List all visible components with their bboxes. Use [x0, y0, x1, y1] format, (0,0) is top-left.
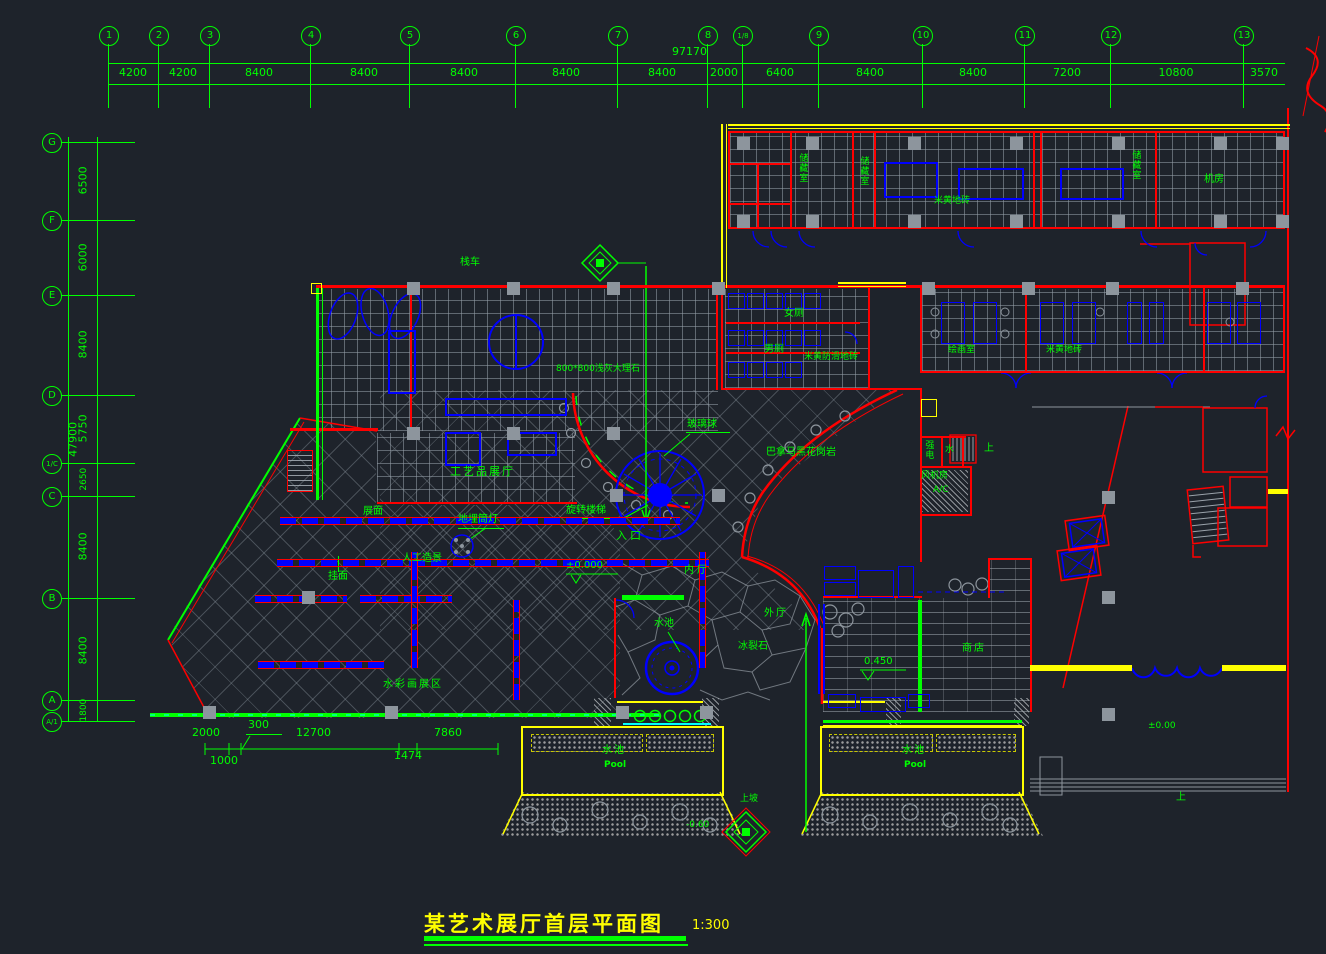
label-pool-left-en: Pool: [604, 760, 626, 770]
dim-label: 8400: [850, 66, 890, 79]
dim-label: 12700: [296, 727, 331, 740]
dim-label: 7860: [434, 727, 462, 740]
dim-label: 6500: [78, 155, 91, 205]
sofa: [858, 570, 894, 598]
yellow-line: [838, 286, 906, 287]
label-downlight: 地埋筒灯: [458, 514, 498, 526]
label-beige-tile-1: 米黄地砖: [934, 196, 970, 206]
label-pool-right-en: Pool: [904, 760, 926, 770]
label-craft-hall: 工艺品展厅: [450, 466, 515, 479]
wall: [1040, 133, 1042, 227]
underline: [686, 432, 730, 433]
grid-line: [61, 700, 135, 701]
wall: [290, 428, 378, 431]
dim-label: 2000: [192, 727, 220, 740]
grid-bubble-7: 7: [608, 26, 628, 46]
yellow-line: [721, 124, 723, 288]
column: [1010, 137, 1023, 150]
column: [1214, 137, 1227, 150]
label-womens-wc: 女厕: [784, 308, 804, 320]
toilet-stall: [728, 362, 745, 378]
yellow-line: [726, 124, 727, 288]
yellow-line: [728, 128, 1290, 129]
walkway-edge: [823, 604, 825, 694]
wall: [726, 322, 860, 324]
grid-line: [61, 463, 135, 464]
label-spiral-stair: 旋转楼梯: [566, 505, 606, 517]
wall: [870, 388, 922, 390]
dim-label: 3570: [1244, 66, 1284, 79]
grid-line: [61, 220, 135, 221]
grid-bubble-B: B: [42, 589, 62, 609]
fan-room-box: [921, 399, 937, 417]
title-underline-thin: [424, 944, 688, 946]
label-granite: 巴拿马黑花岗岩: [766, 447, 836, 459]
yellow-line: [838, 282, 906, 284]
label-landscape: 人工造景: [402, 553, 442, 565]
dim-label: 8400: [78, 625, 91, 675]
label-storage-1: 储藏室: [797, 153, 807, 201]
wall: [988, 558, 990, 598]
dim-label: 8400: [239, 66, 279, 79]
label-glass-ball: 玻璃球: [687, 419, 717, 431]
toilet-stall: [785, 330, 802, 346]
grid-bubble-A: A: [42, 691, 62, 711]
pool-strip: [646, 734, 714, 752]
display-wall: [255, 595, 347, 603]
column: [610, 489, 623, 502]
grid-bubble-11: 11: [1015, 26, 1035, 46]
column: [1112, 215, 1125, 228]
wall: [920, 371, 1285, 373]
dim-label: 1800: [79, 685, 89, 735]
column: [302, 591, 315, 604]
toilet-stall: [766, 293, 783, 309]
dim-line-left: [97, 137, 98, 722]
label-mens-wc: 男厕: [764, 344, 784, 356]
dim-label: 7200: [1047, 66, 1087, 79]
wall: [728, 163, 790, 165]
grid-line: [61, 395, 135, 396]
display-case: [388, 330, 416, 394]
wall: [868, 287, 870, 390]
wall: [757, 163, 759, 229]
label-machine-room: 机房: [1204, 174, 1224, 186]
toilet-stall: [804, 330, 821, 346]
toilet-stall: [728, 293, 745, 309]
grid-bubble-2: 2: [149, 26, 169, 46]
grid-bubble-6: 6: [506, 26, 526, 46]
table: [1207, 302, 1231, 344]
label-storage-2: 储藏室: [858, 156, 868, 204]
wall: [962, 436, 964, 466]
column: [806, 137, 819, 150]
label-cart: 栈车: [460, 257, 480, 269]
display-case: [445, 432, 481, 466]
column: [203, 706, 216, 719]
yellow-line: [617, 701, 703, 703]
wall: [941, 438, 943, 466]
table: [1149, 302, 1164, 344]
dim-label: 6000: [78, 232, 91, 282]
grid-bubble-1C: 1/C: [42, 454, 62, 474]
column: [607, 427, 620, 440]
grid-line: [61, 721, 135, 722]
underline: [458, 528, 504, 529]
green-wall: [316, 288, 319, 500]
label-inner-hall: 内厅: [684, 565, 710, 577]
column: [712, 489, 725, 502]
dim-label: 2000: [704, 66, 744, 79]
grid-bubble-4: 4: [301, 26, 321, 46]
wall: [728, 131, 1285, 133]
sofa: [824, 582, 856, 596]
linework: [0, 0, 1326, 954]
label-electrical: 强电: [923, 440, 933, 468]
grid-bubble-10: 10: [913, 26, 933, 46]
dim-label: 1474: [394, 750, 422, 763]
cad-canvas: 97170 1 2 3 4 5 6 7 8 1/8 9 10 11 12 13 …: [0, 0, 1326, 954]
sofa: [824, 566, 856, 580]
title-underline-thick: [424, 936, 686, 941]
label-up-stair: 上: [984, 443, 994, 455]
wall: [721, 287, 723, 390]
toilet-stall: [747, 330, 764, 346]
toilet-stall: [747, 362, 764, 378]
wall: [790, 133, 792, 227]
wall: [377, 502, 577, 504]
table: [1127, 302, 1142, 344]
label-up-slope: 上坡: [740, 794, 758, 804]
wall: [728, 131, 730, 229]
underline: [246, 734, 282, 735]
toilet-stall: [766, 362, 783, 378]
table: [973, 302, 997, 344]
wall: [874, 133, 876, 227]
grid-bubble-13: 13: [1234, 26, 1254, 46]
dim-line-top-total: [108, 63, 1285, 64]
showcase: [828, 694, 856, 708]
wall: [728, 203, 790, 205]
wall: [1155, 133, 1157, 227]
grid-bubble-A1: A/1: [42, 712, 62, 732]
grid-bubble-G: G: [42, 133, 62, 153]
dim-line-top: [108, 84, 1285, 85]
dim-label: 2650: [79, 454, 89, 504]
toilet-stall: [747, 293, 764, 309]
label-pool-right: 水池: [902, 745, 926, 757]
dim-label: 4200: [113, 66, 153, 79]
wall: [920, 514, 972, 516]
grid-line: [515, 44, 516, 108]
column: [385, 706, 398, 719]
column: [922, 282, 935, 295]
dim-label: 5750: [78, 403, 91, 453]
label-shop: 商店: [962, 643, 986, 655]
grid-line: [61, 295, 135, 296]
wall: [852, 133, 854, 227]
desk: [1060, 168, 1124, 200]
label-level-neg060: -0.60: [686, 820, 709, 830]
column: [1112, 137, 1125, 150]
column: [908, 215, 921, 228]
boundary-right: [1287, 108, 1289, 792]
column: [1276, 215, 1289, 228]
dim-label: 10800: [1156, 66, 1196, 79]
dim-label: 6400: [760, 66, 800, 79]
grid-line: [209, 44, 210, 108]
shop-bottom: [823, 720, 1022, 723]
column: [607, 282, 620, 295]
dim-label: 8400: [642, 66, 682, 79]
grid-bubble-1-8: 1/8: [733, 26, 753, 46]
dim-label: 8400: [344, 66, 384, 79]
label-level-450: 0.450: [864, 656, 893, 668]
column: [507, 282, 520, 295]
label-watercolor-area: 水彩画展区: [383, 679, 443, 691]
dim-label: 8400: [444, 66, 484, 79]
grid-line: [310, 44, 311, 108]
grid-bubble-5: 5: [400, 26, 420, 46]
column: [908, 137, 921, 150]
yellow-line: [728, 124, 1290, 126]
wall: [988, 558, 1032, 560]
drawing-scale: 1:300: [692, 919, 729, 934]
pool-strip: [531, 734, 643, 752]
grid-bubble-C: C: [42, 487, 62, 507]
label-entrance: 入口: [616, 530, 644, 543]
label-hanging: 挂面: [328, 571, 348, 583]
showcase: [908, 694, 930, 708]
wall: [1203, 287, 1205, 373]
grid-bubble-12: 12: [1101, 26, 1121, 46]
pool-strip: [936, 734, 1016, 752]
toilet-stall: [785, 362, 802, 378]
wall: [716, 287, 718, 390]
yellow-line: [1222, 665, 1286, 671]
grid-bubble-8: 8: [698, 26, 718, 46]
grid-line: [108, 44, 109, 108]
column: [1102, 591, 1115, 604]
display-wall: [277, 559, 709, 567]
column: [737, 215, 750, 228]
toilet-stall: [728, 330, 745, 346]
display-wall: [411, 552, 418, 668]
column: [1106, 282, 1119, 295]
grid-bubble-1: 1: [99, 26, 119, 46]
grid-line: [617, 44, 618, 108]
label-beige-tile-2: 米黄地砖: [1046, 345, 1082, 355]
column: [407, 282, 420, 295]
walkway-edge: [818, 604, 820, 694]
label-level-000: ±0.00: [1148, 721, 1176, 731]
label-display: 展面: [363, 506, 383, 518]
table: [941, 302, 965, 344]
label-up-road: 上: [1176, 792, 1186, 804]
label-marble: 800*800浅灰大理石: [556, 364, 640, 374]
table: [1040, 302, 1064, 344]
column: [806, 215, 819, 228]
grid-line: [922, 44, 923, 108]
column: [1236, 282, 1249, 295]
label-painting-room: 绘画室: [948, 345, 975, 355]
grid-line: [61, 598, 135, 599]
table: [1072, 302, 1096, 344]
grid-bubble-F: F: [42, 211, 62, 231]
grid-line: [1024, 44, 1025, 108]
grid-bubble-9: 9: [809, 26, 829, 46]
display-wall: [360, 595, 452, 603]
column: [1214, 215, 1227, 228]
dim-label: 8400: [78, 521, 91, 571]
grid-line: [409, 44, 410, 108]
grid-line: [158, 44, 159, 108]
grid-bubble-E: E: [42, 286, 62, 306]
wall: [1033, 133, 1035, 227]
label-fan-room: 风机房: [921, 471, 948, 481]
wall: [920, 287, 922, 373]
label-water-room: 水: [945, 445, 954, 455]
yellow-marker: [311, 283, 322, 294]
wall: [614, 598, 616, 698]
entry-threshold: [622, 595, 684, 600]
dim-label: 1000: [210, 755, 238, 768]
label-ac: A/C: [933, 485, 948, 495]
table: [1237, 302, 1261, 344]
dim-label: 4200: [163, 66, 203, 79]
column: [407, 427, 420, 440]
label-level-zero: ±0.000: [566, 560, 603, 572]
label-antislip-tile: 米黄防滑地砖: [804, 352, 858, 362]
wall: [1025, 287, 1027, 373]
green-wall: [322, 288, 323, 500]
wall: [721, 388, 871, 390]
column: [1276, 137, 1289, 150]
dim-label: 300: [248, 719, 269, 732]
total-dim-top: 97170: [672, 46, 707, 59]
label-storage-3: 储藏室: [1130, 150, 1140, 198]
sofa: [898, 566, 914, 598]
column: [1102, 708, 1115, 721]
yellow-line: [1268, 489, 1288, 494]
dim-label: 8400: [546, 66, 586, 79]
toilet-stall: [804, 293, 821, 309]
showcase: [860, 697, 906, 712]
wall: [316, 285, 1285, 288]
label-crackle-stone: 冰裂石: [738, 641, 768, 653]
wall: [1283, 287, 1285, 373]
wall: [920, 436, 966, 438]
wall: [1030, 558, 1032, 712]
grid-bubble-D: D: [42, 386, 62, 406]
column: [1010, 215, 1023, 228]
column: [737, 137, 750, 150]
column: [712, 282, 725, 295]
grid-line: [1110, 44, 1111, 108]
label-outer-hall: 外厅: [764, 608, 788, 620]
display-wall: [258, 661, 384, 669]
label-pond-leader: 水池: [654, 618, 674, 630]
label-pool-left: 水池: [602, 745, 626, 757]
column: [700, 706, 713, 719]
yellow-line: [1030, 665, 1132, 671]
porch-edge: [623, 723, 711, 725]
column: [507, 427, 520, 440]
toilet-stall: [785, 293, 802, 309]
grid-line: [818, 44, 819, 108]
grid-line: [61, 142, 135, 143]
desk: [884, 162, 938, 198]
grid-line: [61, 496, 135, 497]
display-case: [445, 398, 567, 416]
grid-bubble-3: 3: [200, 26, 220, 46]
display-wall: [513, 600, 520, 700]
wall: [970, 468, 972, 516]
column: [1102, 491, 1115, 504]
drawing-title: 某艺术展厅首层平面图: [424, 908, 664, 938]
column: [616, 706, 629, 719]
dim-label: 8400: [78, 319, 91, 369]
dim-label: 8400: [953, 66, 993, 79]
column: [1022, 282, 1035, 295]
